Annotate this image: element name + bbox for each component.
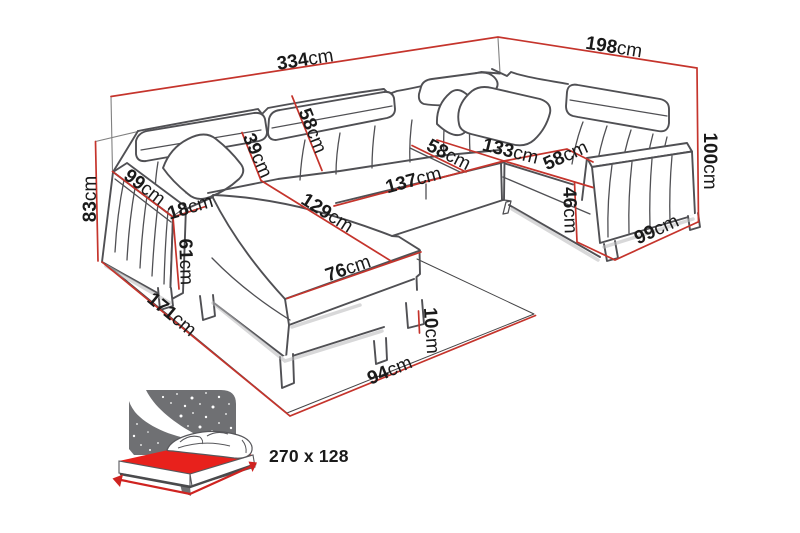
svg-text:270 x 128: 270 x 128 (269, 446, 349, 466)
svg-text:61cm: 61cm (174, 238, 197, 285)
svg-text:83cm: 83cm (80, 176, 101, 222)
svg-text:100cm: 100cm (699, 132, 720, 189)
svg-text:10cm: 10cm (419, 307, 443, 355)
svg-text:46cm: 46cm (558, 187, 581, 234)
